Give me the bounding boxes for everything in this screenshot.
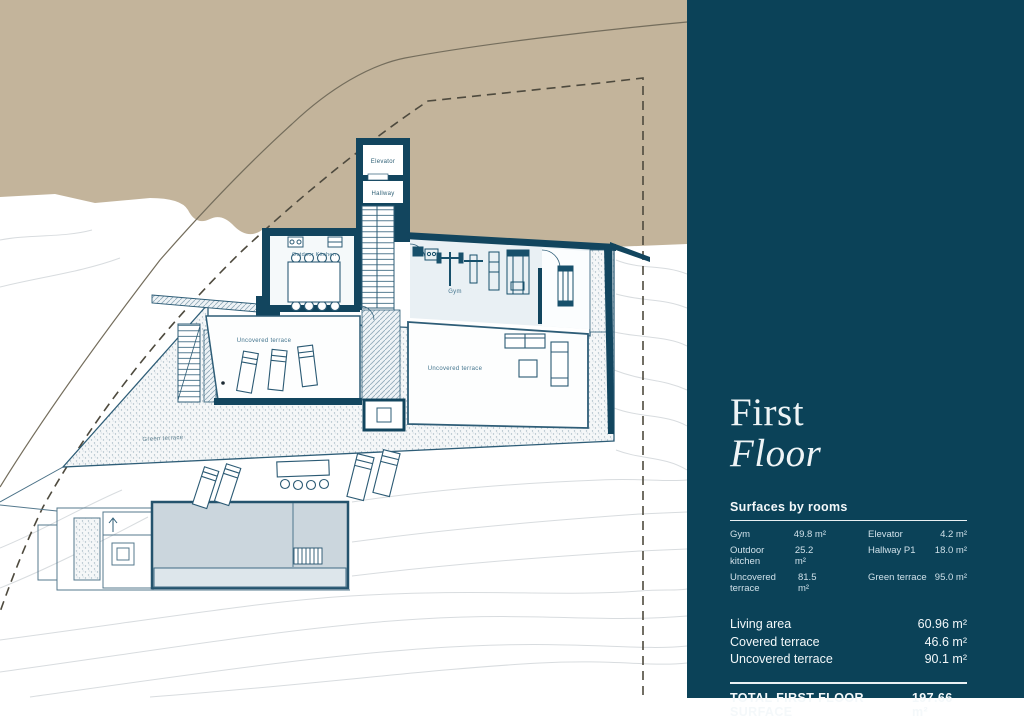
- outdoor-dining-set: [277, 460, 329, 489]
- column-gap: [826, 572, 868, 594]
- room-value: 25.2 m²: [795, 545, 826, 567]
- outdoor-kitchen-label: Outdoor Kitchen: [292, 252, 336, 258]
- room-value: 81.5 m²: [798, 572, 826, 594]
- summary-row: Living area 60.96 m²: [730, 616, 967, 634]
- table-row: Elevator 4.2 m²: [868, 529, 967, 540]
- total-rule: [730, 682, 967, 684]
- pool-steps: [294, 548, 322, 564]
- room-label: Elevator: [868, 529, 903, 540]
- surfaces-heading: Surfaces by rooms: [730, 500, 984, 514]
- retaining-wall: [152, 295, 280, 317]
- room-value: 95.0 m²: [935, 572, 967, 583]
- page-title-line2: Floor: [730, 433, 984, 474]
- summary-label: Living area: [730, 616, 791, 634]
- page-title: First Floor: [730, 392, 984, 474]
- summary-value: 46.6 m²: [925, 634, 967, 652]
- total-label: TOTAL FIRST FLOOR SURFACE: [730, 691, 912, 719]
- room-label: Uncovered terrace: [730, 572, 798, 594]
- sidebar: First Floor Surfaces by rooms Gym 49.8 m…: [687, 0, 1024, 698]
- heading-rule: [730, 520, 967, 521]
- table-row: Outdoor kitchen 25.2 m²: [730, 545, 826, 567]
- room-value: 49.8 m²: [794, 529, 826, 540]
- table-row: Green terrace 95.0 m²: [868, 572, 967, 594]
- summary-row: Covered terrace 46.6 m²: [730, 634, 967, 652]
- summary-value: 90.1 m²: [925, 651, 967, 669]
- summary-row: Uncovered terrace 90.1 m²: [730, 651, 967, 669]
- gym-label: Gym: [448, 289, 462, 295]
- room-value: 18.0 m²: [935, 545, 967, 556]
- page-title-line1: First: [730, 391, 804, 434]
- hallway-label: Hallway: [371, 191, 394, 197]
- total-value: 197.66 m²: [912, 691, 967, 719]
- room-value: 4.2 m²: [940, 529, 967, 540]
- room-label: Outdoor kitchen: [730, 545, 795, 567]
- terrace-right-label: Uncovered terrace: [428, 366, 483, 372]
- column-gap: [826, 529, 868, 540]
- elevator-label: Elevator: [371, 159, 395, 165]
- table-row: Gym 49.8 m²: [730, 529, 826, 540]
- terrace-right: Uncovered terrace: [408, 322, 588, 428]
- terrace-left: Uncovered terrace: [206, 316, 362, 405]
- room-label: Gym: [730, 529, 750, 540]
- table-row: Hallway P1 18.0 m²: [868, 545, 967, 567]
- summary-value: 60.96 m²: [918, 616, 967, 634]
- room-label: Green terrace: [868, 572, 927, 583]
- summary-label: Covered terrace: [730, 634, 820, 652]
- rooms-table: Gym 49.8 m² Elevator 4.2 m² Outdoor kitc…: [730, 529, 967, 594]
- terrace-left-label: Uncovered terrace: [237, 338, 292, 344]
- pool: [152, 502, 348, 588]
- summary-label: Uncovered terrace: [730, 651, 833, 669]
- room-label: Hallway P1: [868, 545, 916, 556]
- dining-table: [288, 254, 340, 311]
- column-gap: [826, 545, 868, 567]
- total-row: TOTAL FIRST FLOOR SURFACE 197.66 m²: [730, 691, 967, 719]
- summary-list: Living area 60.96 m² Covered terrace 46.…: [730, 616, 967, 669]
- outdoor-kitchen: Outdoor Kitchen: [262, 228, 374, 320]
- table-row: Uncovered terrace 81.5 m²: [730, 572, 826, 594]
